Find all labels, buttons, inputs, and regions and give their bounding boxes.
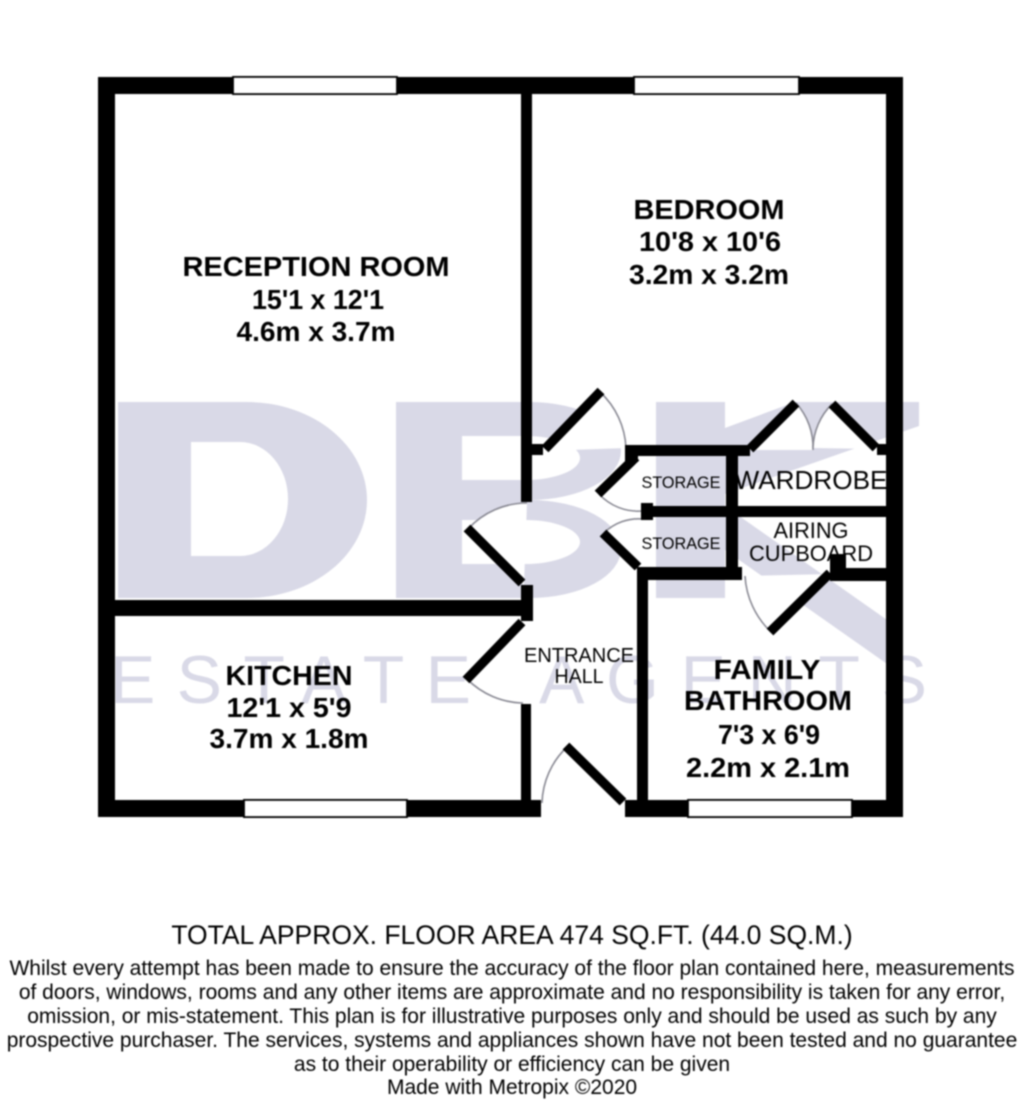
svg-text:ENTRANCE: ENTRANCE: [524, 645, 634, 667]
svg-text:10'8 x 10'6: 10'8 x 10'6: [639, 226, 781, 257]
svg-text:STORAGE: STORAGE: [642, 534, 721, 553]
svg-text:4.6m x 3.7m: 4.6m x 3.7m: [237, 316, 396, 347]
svg-text:as to their operability or eff: as to their operability or efficiency ca…: [294, 1053, 730, 1076]
svg-text:CUPBOARD: CUPBOARD: [749, 541, 873, 566]
svg-text:of doors, windows, rooms and a: of doors, windows, rooms and any other i…: [19, 981, 1005, 1004]
svg-text:12'1 x 5'9: 12'1 x 5'9: [227, 692, 352, 723]
svg-text:TOTAL APPROX. FLOOR AREA 474 S: TOTAL APPROX. FLOOR AREA 474 SQ.FT. (44.…: [171, 920, 852, 950]
svg-text:RECEPTION ROOM: RECEPTION ROOM: [183, 251, 450, 282]
svg-text:HALL: HALL: [555, 666, 604, 688]
svg-text:STORAGE: STORAGE: [642, 473, 721, 492]
svg-text:AIRING: AIRING: [774, 518, 849, 543]
svg-text:7'3 x 6'9: 7'3 x 6'9: [718, 719, 820, 750]
svg-text:3.2m x 3.2m: 3.2m x 3.2m: [629, 259, 789, 290]
svg-text:FAMILY: FAMILY: [714, 654, 821, 685]
svg-text:3.7m x 1.8m: 3.7m x 1.8m: [210, 723, 369, 754]
svg-text:BATHROOM: BATHROOM: [684, 685, 852, 716]
svg-text:omission, or mis-statement. Th: omission, or mis-statement. This plan is…: [27, 1005, 997, 1028]
svg-text:BEDROOM: BEDROOM: [634, 194, 785, 225]
svg-text:2.2m x 2.1m: 2.2m x 2.1m: [686, 752, 850, 783]
svg-text:15'1 x 12'1: 15'1 x 12'1: [252, 284, 384, 315]
svg-text:Made with Metropix ©2020: Made with Metropix ©2020: [387, 1076, 637, 1099]
svg-text:Whilst every attempt has been: Whilst every attempt has been made to en…: [9, 957, 1014, 980]
svg-text:prospective purchaser. The ser: prospective purchaser. The services, sys…: [7, 1029, 1018, 1052]
svg-text:KITCHEN: KITCHEN: [226, 660, 353, 691]
svg-text:WARDROBE: WARDROBE: [735, 465, 888, 495]
